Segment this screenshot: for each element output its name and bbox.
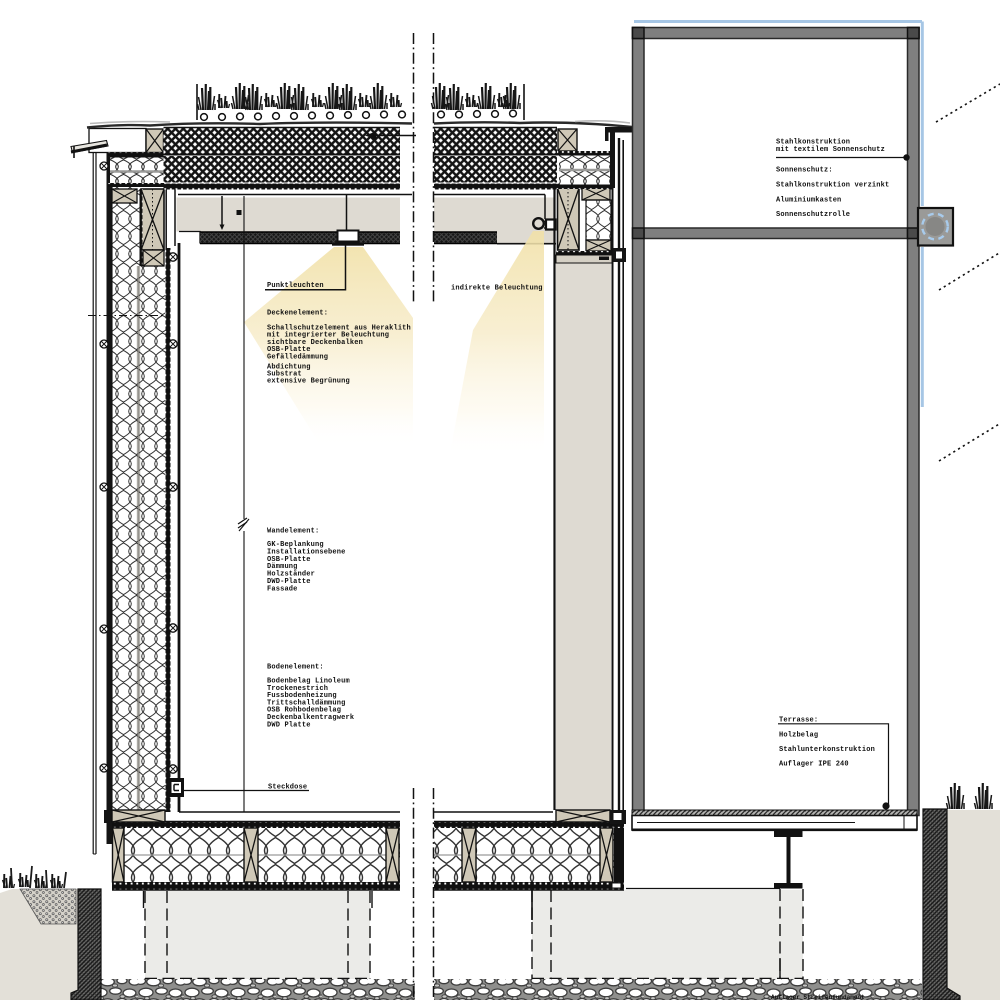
svg-text:indirekte Beleuchtung: indirekte Beleuchtung bbox=[451, 285, 543, 293]
svg-text:extensive Begrünung: extensive Begrünung bbox=[267, 378, 350, 386]
svg-text:Punktleuchten: Punktleuchten bbox=[267, 282, 324, 290]
svg-text:Wandelement:: Wandelement: bbox=[267, 528, 319, 536]
svg-text:Fassade: Fassade bbox=[267, 585, 298, 593]
svg-text:Auflager IPE 240: Auflager IPE 240 bbox=[779, 761, 849, 769]
svg-text:Auflager Streifenfundament: Auflager Streifenfundament bbox=[771, 994, 865, 1000]
svg-text:Stahlunterkonstruktion: Stahlunterkonstruktion bbox=[779, 746, 875, 754]
svg-text:Deckenelement:: Deckenelement: bbox=[267, 310, 328, 318]
svg-text:Gefälledämmung: Gefälledämmung bbox=[267, 353, 328, 361]
svg-text:DWD Platte: DWD Platte bbox=[267, 721, 311, 729]
svg-text:Holzbelag: Holzbelag bbox=[779, 732, 818, 740]
svg-text:Sonnenschutz:: Sonnenschutz: bbox=[776, 167, 833, 175]
svg-text:Bodenelement:: Bodenelement: bbox=[267, 664, 324, 672]
svg-text:Aluminiumkasten: Aluminiumkasten bbox=[776, 197, 841, 205]
svg-text:Sonnenschutzrolle: Sonnenschutzrolle bbox=[776, 211, 850, 219]
svg-text:Stahlkonstruktion verzinkt: Stahlkonstruktion verzinkt bbox=[776, 182, 889, 190]
svg-text:mit textilem Sonnenschutz: mit textilem Sonnenschutz bbox=[776, 146, 885, 154]
